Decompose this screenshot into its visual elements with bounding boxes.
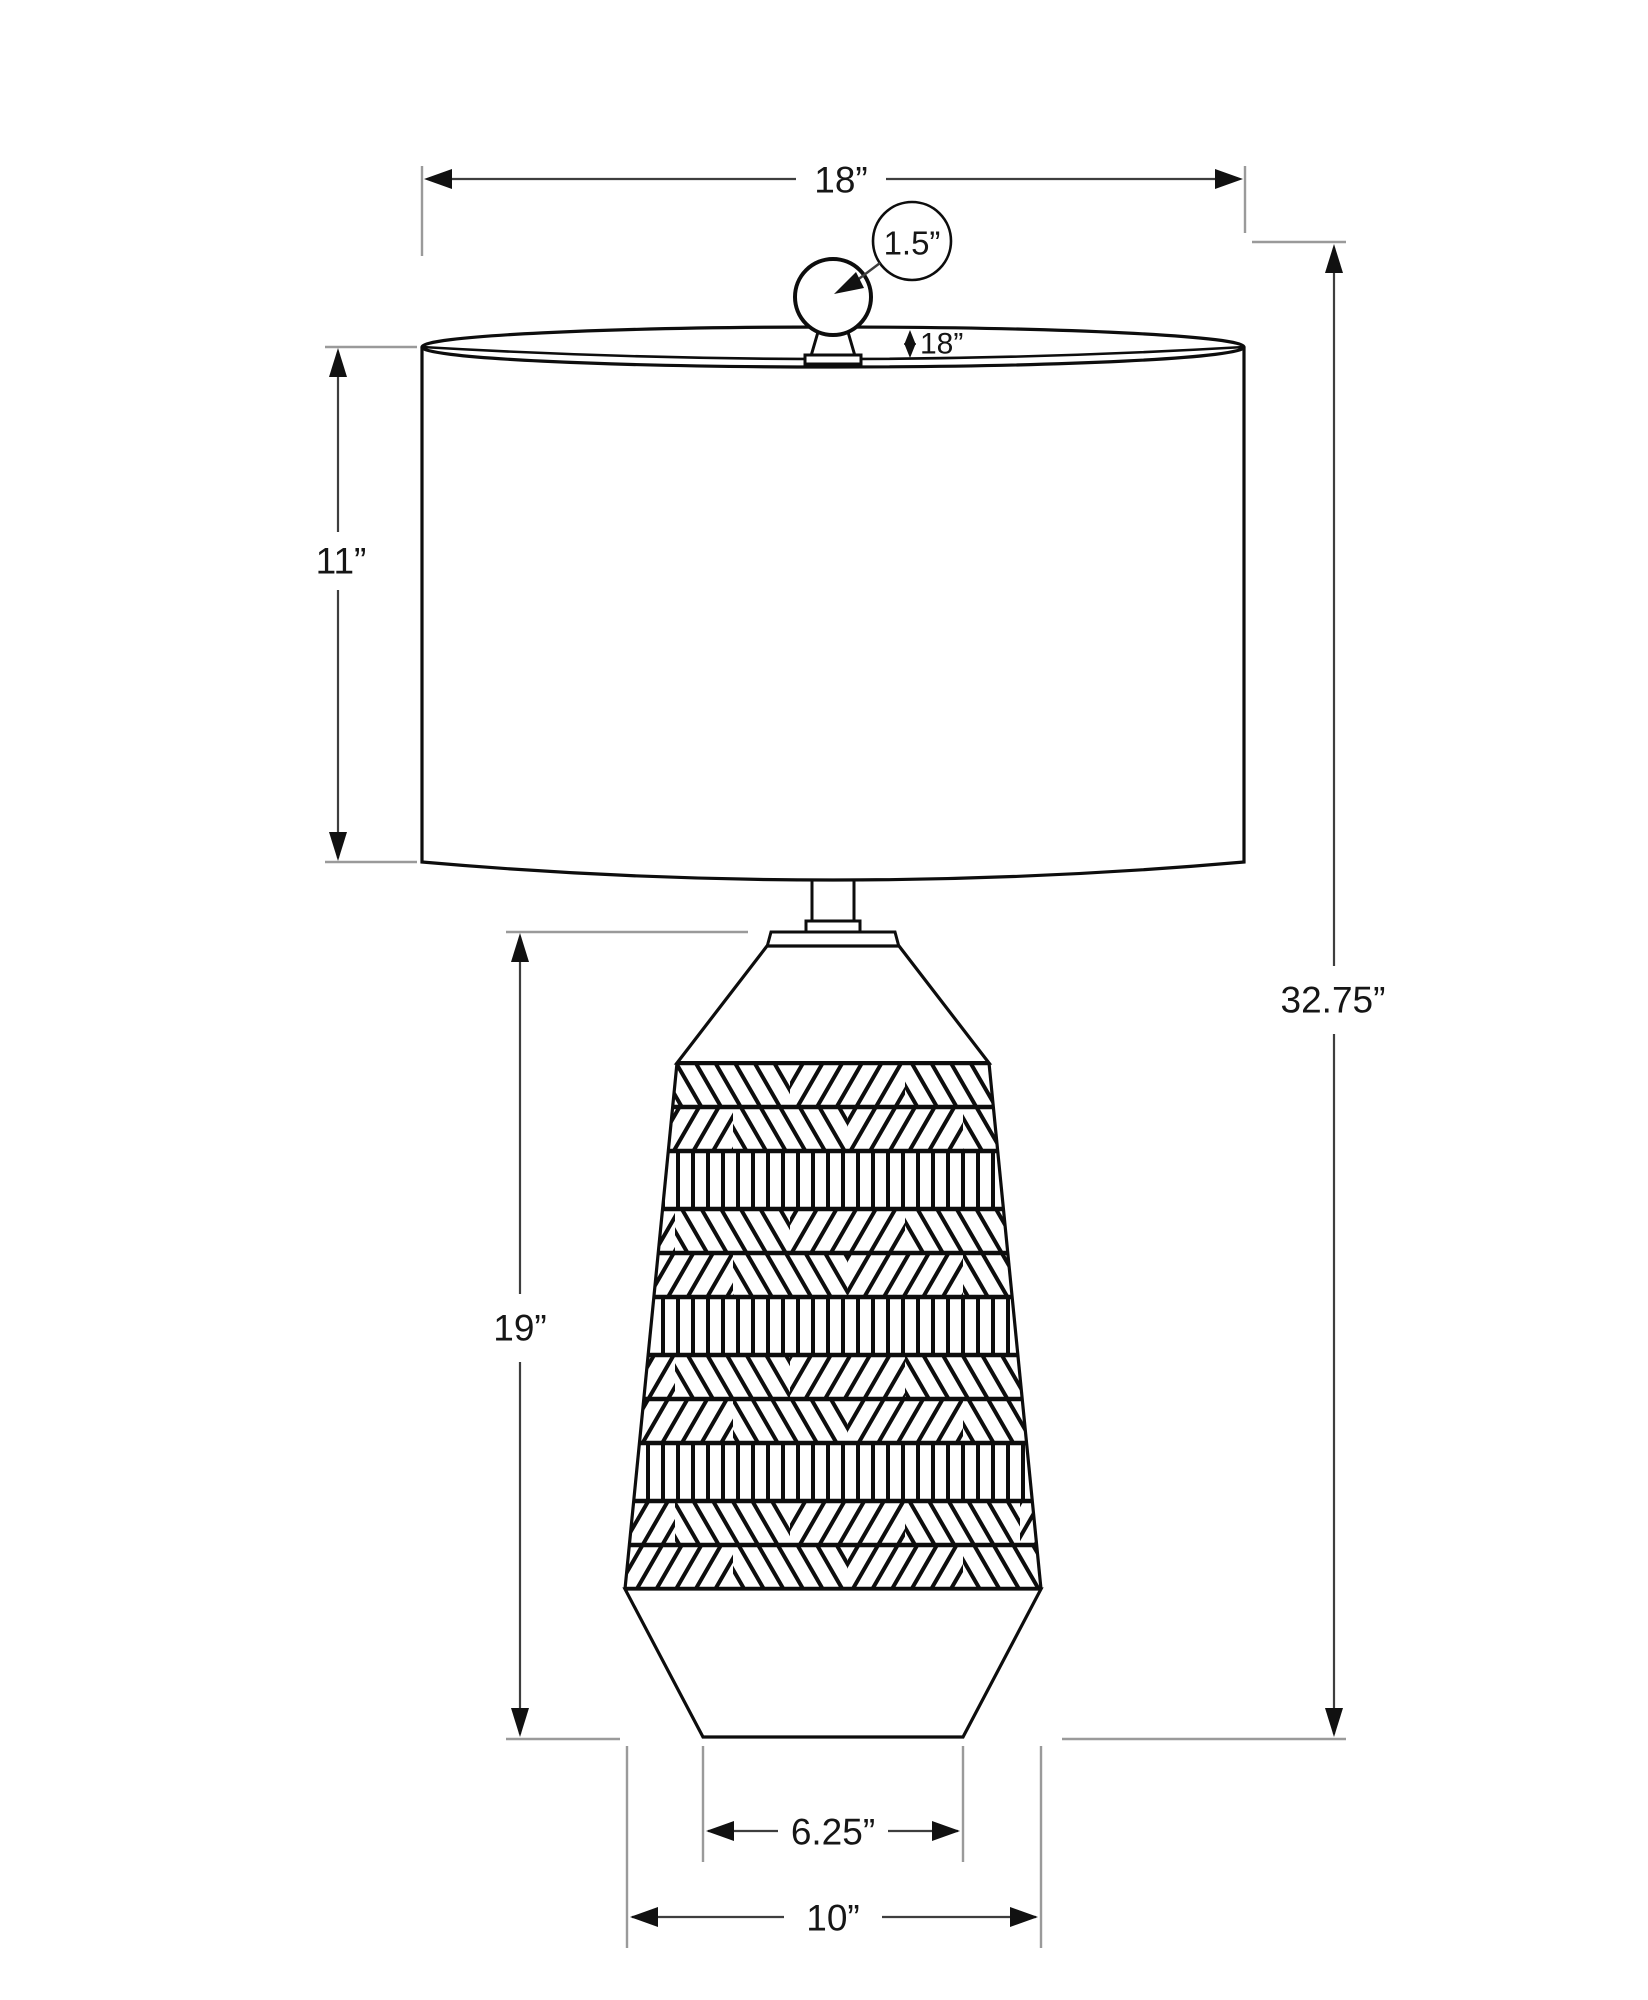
dim-label-shade-width: 18” bbox=[814, 160, 867, 201]
dim-label-base-inner-width: 6.25” bbox=[791, 1812, 875, 1853]
dimension-shade-height: 11” bbox=[316, 347, 417, 862]
shade-body bbox=[422, 347, 1244, 880]
dim-label-rim-depth: 18” bbox=[920, 328, 963, 361]
diagram-svg: 18” 1.5” 18” 11” bbox=[0, 0, 1648, 2000]
dimension-finial-callout: 1.5” bbox=[834, 202, 951, 294]
body-pattern bbox=[503, 1063, 1193, 1589]
lamp-shade bbox=[422, 327, 1244, 880]
dim-label-shade-height: 11” bbox=[316, 541, 367, 582]
lamp-body-top bbox=[677, 921, 989, 1063]
dim-label-overall-height: 32.75” bbox=[1281, 980, 1386, 1021]
dim-label-base-outer-width: 10” bbox=[806, 1898, 859, 1939]
body-shoulder bbox=[677, 946, 989, 1063]
dimension-base-inner-width: 6.25” bbox=[703, 1746, 963, 1862]
dim-label-finial-diameter: 1.5” bbox=[884, 225, 941, 262]
lamp-dimension-diagram: 18” 1.5” 18” 11” bbox=[0, 0, 1648, 2000]
finial-foot bbox=[805, 355, 861, 364]
finial-ball bbox=[795, 259, 871, 335]
dim-label-body-height: 19” bbox=[493, 1308, 546, 1349]
lamp-base bbox=[625, 1589, 1041, 1737]
dimension-shade-width: 18” bbox=[422, 160, 1245, 257]
